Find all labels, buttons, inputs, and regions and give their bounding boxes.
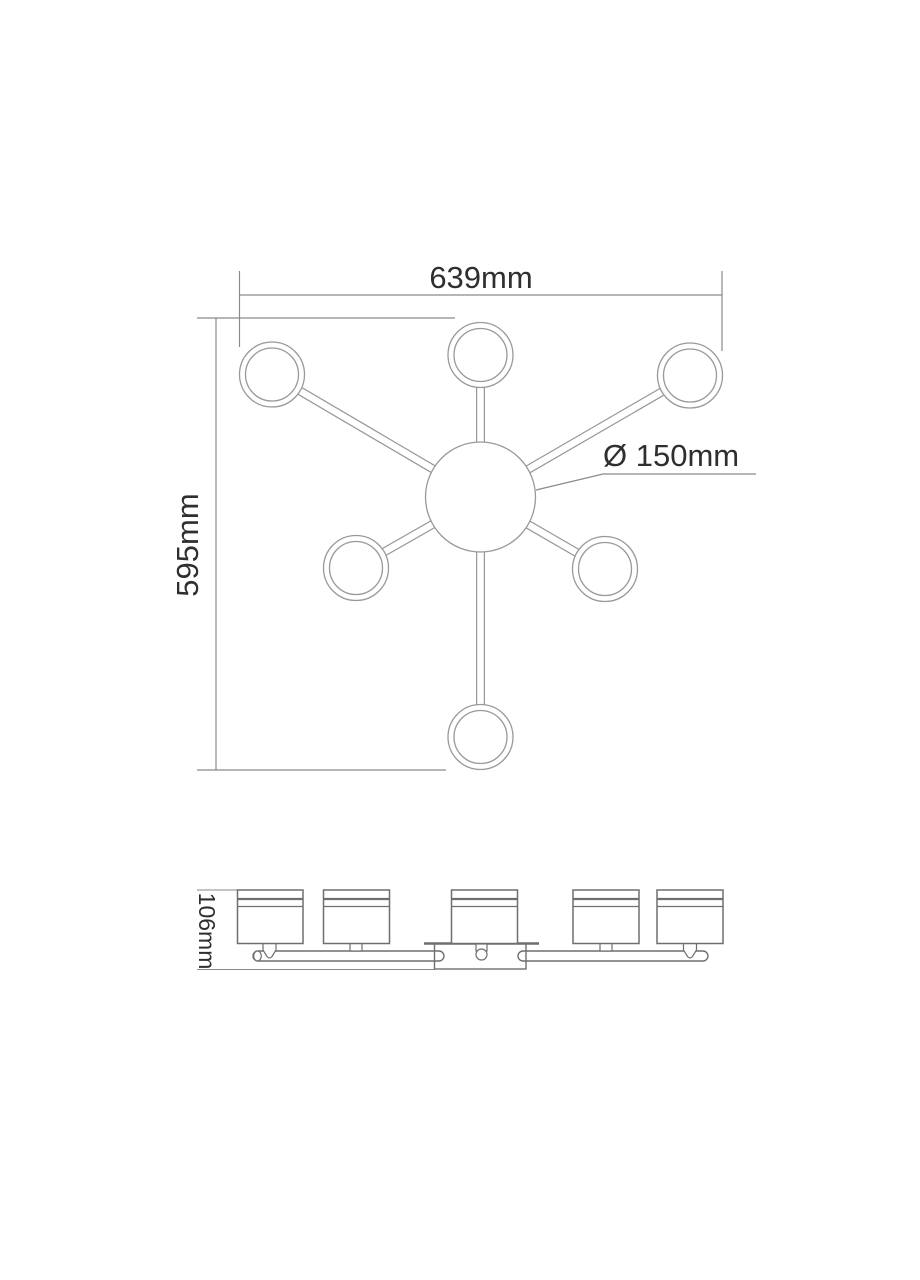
- shade-2: [324, 890, 390, 944]
- bar-left-segment: [253, 951, 444, 961]
- lamp-ring-upper-left: [240, 342, 305, 407]
- bar-right-segment: [518, 951, 708, 961]
- side-height-dimension-label: 106mm: [194, 893, 220, 970]
- bar-left-end-cap: [254, 951, 262, 961]
- shade-4: [573, 890, 639, 944]
- side-shades: [238, 890, 724, 944]
- shade-1: [238, 890, 304, 944]
- diameter-dimension-label: Ø 150mm: [603, 438, 739, 473]
- diameter-leader-line: [536, 474, 756, 490]
- width-dimension-label: 639mm: [429, 260, 532, 295]
- height-dimension-label: 595mm: [170, 493, 205, 596]
- lamp-ring-bottom: [448, 705, 513, 770]
- lamp-ring-lower-right: [573, 537, 638, 602]
- lamp-ring-upper-right: [658, 343, 723, 408]
- lamp-ring-lower-left: [324, 536, 389, 601]
- shade-3-center: [452, 890, 518, 944]
- top-view-drawing: 639mm 595mm: [170, 260, 756, 770]
- lamp-ring-top: [448, 323, 513, 388]
- dimension-drawing-canvas: 639mm 595mm: [0, 0, 920, 1280]
- side-view-fixture: [238, 890, 724, 969]
- height-dimension: [197, 318, 455, 770]
- shade-5: [657, 890, 723, 944]
- nipple-ball: [476, 949, 487, 960]
- central-body-circle: [426, 442, 536, 552]
- technical-drawing-page: 639mm 595mm: [0, 0, 920, 1280]
- side-view-drawing: 106mm: [194, 890, 723, 970]
